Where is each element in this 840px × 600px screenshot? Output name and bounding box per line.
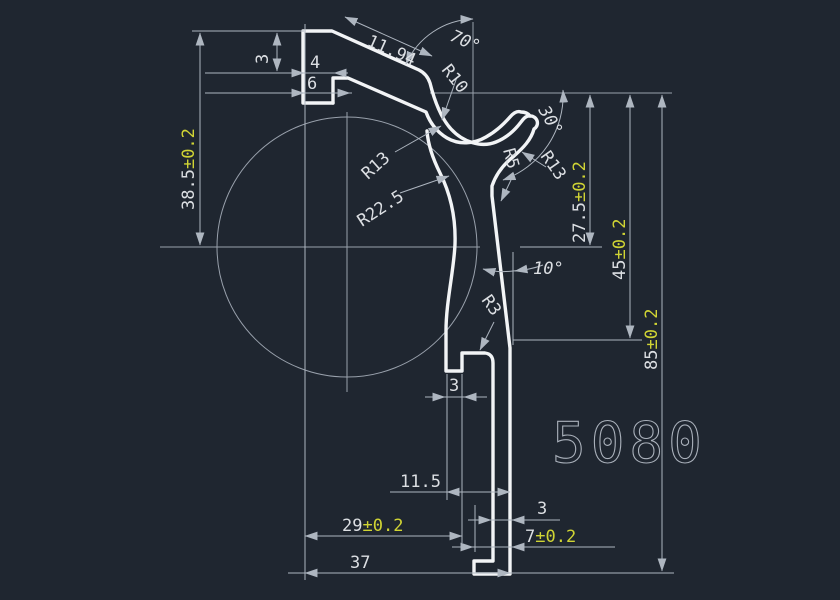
dim-height-38-5: 38.5±0.2 bbox=[179, 128, 199, 210]
arc-10deg bbox=[483, 269, 513, 272]
dim-6: 6 bbox=[307, 74, 317, 94]
dim-height-45-tol: ±0.2 bbox=[610, 219, 630, 260]
dim-height-45-value: 45 bbox=[610, 260, 630, 280]
dim-height-45: 45±0.2 bbox=[610, 219, 630, 280]
dim-radius-r13-left: R13 bbox=[358, 148, 394, 183]
leader-r22-5 bbox=[400, 176, 449, 193]
construction-geometry bbox=[160, 22, 672, 392]
leader-r3 bbox=[480, 322, 494, 350]
cad-canvas: 11.94 70° 3 4 6 38.5±0.2 R10 30° R13 R22… bbox=[0, 0, 840, 600]
dim-height-38-5-tol: ±0.2 bbox=[179, 128, 199, 169]
dim-notch-width: 3 bbox=[449, 376, 459, 396]
dim-top-thickness: 3 bbox=[253, 54, 273, 64]
dim-foot-width-tol: ±0.2 bbox=[535, 527, 576, 547]
dim-height-27-5: 27.5±0.2 bbox=[570, 161, 590, 243]
dim-height-85-value: 85 bbox=[642, 350, 662, 370]
dim-width-29-tol: ±0.2 bbox=[362, 516, 403, 536]
leader-r5 bbox=[501, 180, 511, 201]
dim-foot-width: 7±0.2 bbox=[525, 527, 576, 547]
dim-slope-length: 11.94 bbox=[364, 31, 419, 70]
dim-radius-r13-right: R13 bbox=[536, 147, 570, 184]
dim-height-27-5-tol: ±0.2 bbox=[570, 161, 590, 202]
dim-width-37: 37 bbox=[350, 553, 370, 573]
dim-leg-thickness: 3 bbox=[537, 499, 547, 519]
dim-radius-r3: R3 bbox=[477, 291, 505, 319]
dim-4: 4 bbox=[310, 53, 320, 73]
dim-height-27-5-value: 27.5 bbox=[570, 202, 590, 243]
dim-height-85: 85±0.2 bbox=[642, 309, 662, 370]
dim-radius-r22-5: R22.5 bbox=[354, 187, 408, 232]
dim-slope-angle: 70° bbox=[447, 26, 483, 57]
dim-height-38-5-value: 38.5 bbox=[179, 169, 199, 210]
dim-height-85-tol: ±0.2 bbox=[642, 309, 662, 350]
dim-radius-cup: R10 bbox=[437, 61, 472, 98]
dim-foot-width-value: 7 bbox=[525, 527, 535, 547]
dimension-texts: 11.94 70° 3 4 6 38.5±0.2 R10 30° R13 R22… bbox=[179, 26, 707, 573]
dim-offset-11-5: 11.5 bbox=[400, 472, 441, 492]
cad-viewport: 11.94 70° 3 4 6 38.5±0.2 R10 30° R13 R22… bbox=[0, 0, 840, 600]
leader-r13-left bbox=[395, 126, 441, 152]
dimension-lines bbox=[192, 17, 674, 580]
dim-width-29-value: 29 bbox=[342, 516, 362, 536]
part-number-label: 5080 bbox=[552, 411, 707, 476]
dim-stem-angle: 10° bbox=[533, 259, 564, 279]
dim-width-29: 29±0.2 bbox=[342, 516, 403, 536]
